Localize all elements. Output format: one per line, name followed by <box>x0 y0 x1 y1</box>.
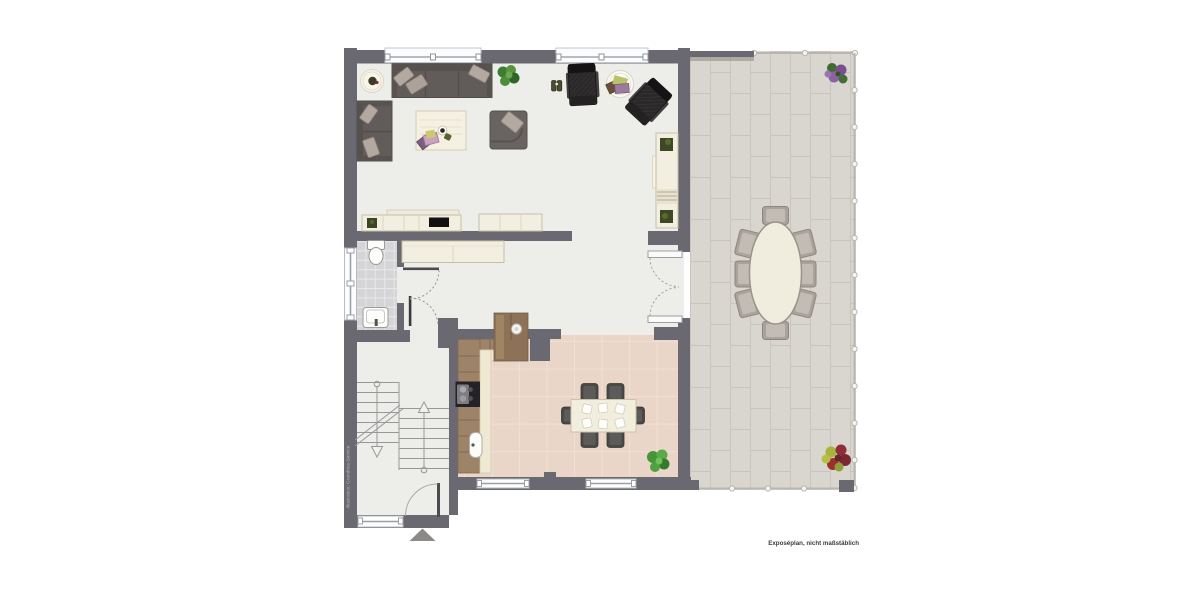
svg-text:Illustration: Grundriss-Servic: Illustration: Grundriss-Service <box>346 445 352 508</box>
